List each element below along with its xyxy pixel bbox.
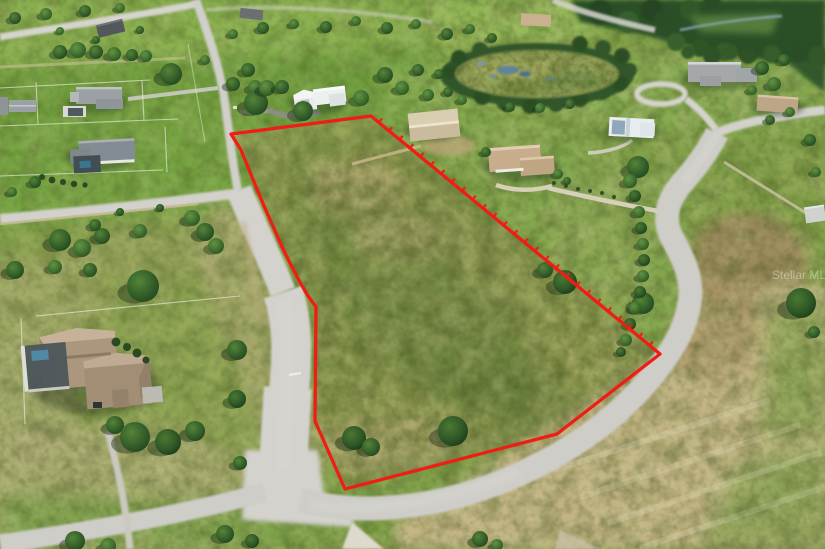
svg-text:Stellar MLS: Stellar MLS — [772, 268, 825, 282]
